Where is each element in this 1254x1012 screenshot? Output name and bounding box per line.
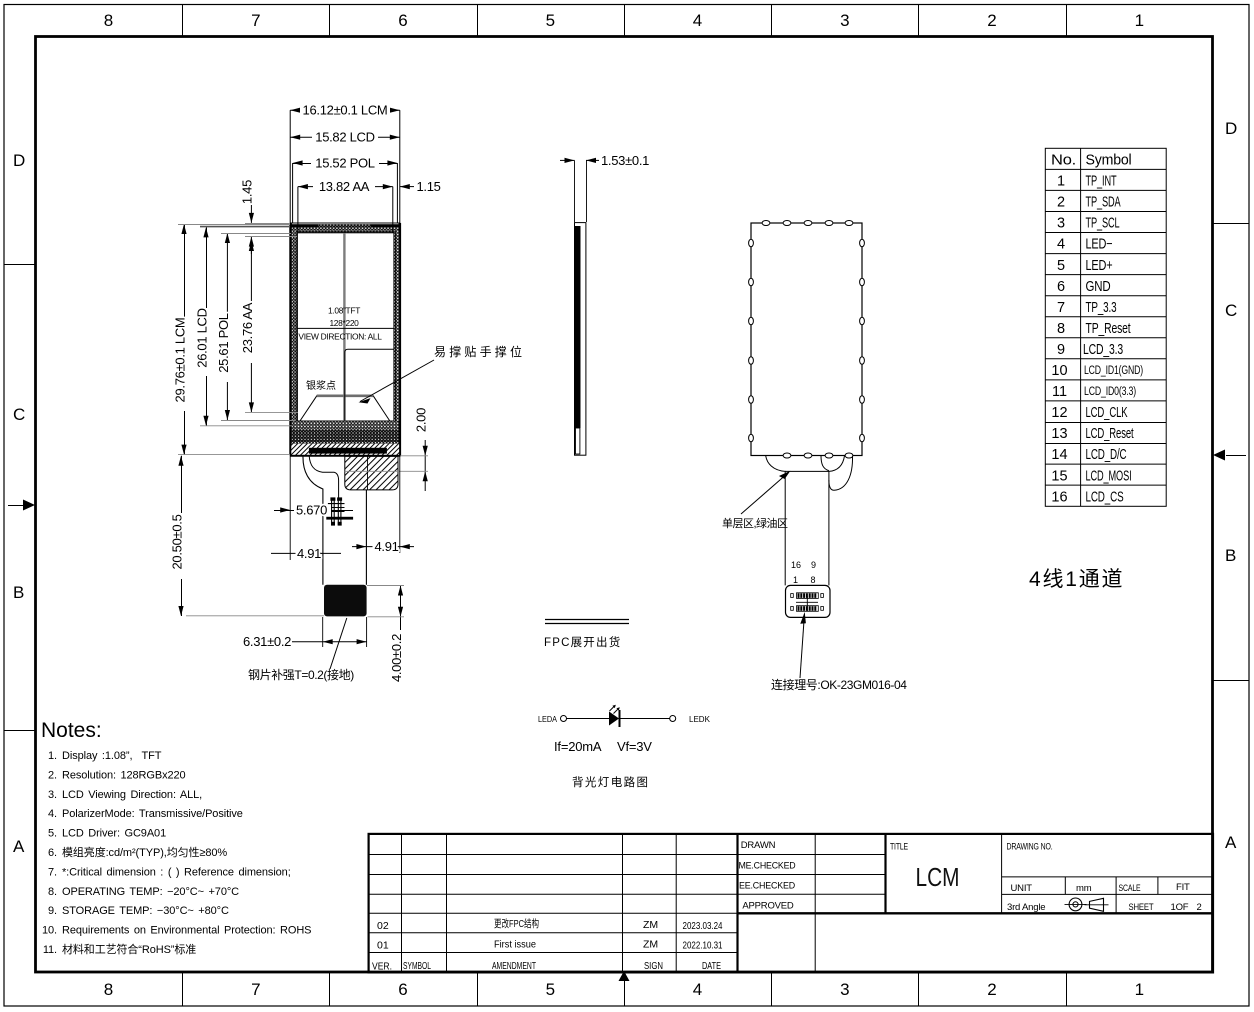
svg-text:单层区,绿油区: 单层区,绿油区	[722, 516, 788, 530]
svg-text:1.08”TFT: 1.08”TFT	[328, 306, 360, 316]
svg-text:16.12±0.1 LCM: 16.12±0.1 LCM	[303, 103, 388, 118]
svg-text:LCD_CLK: LCD_CLK	[1086, 405, 1128, 421]
svg-text:连接理号:OK-23GM016-04: 连接理号:OK-23GM016-04	[771, 677, 907, 692]
svg-text:DATE: DATE	[702, 960, 721, 972]
svg-text:Symbol: Symbol	[1086, 153, 1132, 169]
svg-text:7: 7	[251, 980, 260, 999]
svg-text:2: 2	[1057, 195, 1065, 211]
svg-text:6.: 6.	[48, 847, 57, 859]
svg-text:15: 15	[1051, 468, 1067, 484]
svg-text:TP_SCL: TP_SCL	[1086, 216, 1120, 232]
svg-text:FIT: FIT	[1176, 882, 1190, 893]
svg-text:4线1通道: 4线1通道	[1029, 568, 1124, 591]
svg-text:D: D	[13, 151, 25, 170]
svg-text:12: 12	[1051, 405, 1067, 421]
svg-text:25.61 POL: 25.61 POL	[216, 313, 231, 373]
svg-text:4: 4	[1057, 237, 1065, 253]
svg-text:13: 13	[1051, 426, 1067, 442]
svg-text:1.53±0.1: 1.53±0.1	[601, 153, 649, 168]
svg-text:LCD_MOSI: LCD_MOSI	[1086, 468, 1132, 484]
svg-text:10: 10	[1051, 363, 1067, 379]
svg-text:4: 4	[693, 11, 702, 30]
svg-text:3: 3	[1057, 216, 1065, 232]
svg-text:8: 8	[104, 11, 113, 30]
svg-text:6.31±0.2: 6.31±0.2	[243, 634, 291, 649]
svg-text:Display :1.08”, TFT: Display :1.08”, TFT	[62, 750, 162, 762]
svg-text:7.: 7.	[48, 866, 57, 878]
svg-text:11.: 11.	[43, 944, 57, 956]
svg-text:16: 16	[791, 560, 801, 570]
svg-text:SYMBOL: SYMBOL	[403, 960, 431, 972]
svg-text:Vf=3V: Vf=3V	[617, 739, 652, 754]
svg-text:LED−: LED−	[1086, 237, 1113, 253]
svg-text:LCD_ID0(3.3): LCD_ID0(3.3)	[1084, 386, 1136, 398]
svg-text:9: 9	[811, 560, 816, 570]
svg-text:DRAWN: DRAWN	[741, 840, 776, 851]
svg-text:1OF: 1OF	[1171, 902, 1189, 913]
svg-text:EE.CHECKED: EE.CHECKED	[739, 881, 795, 892]
svg-text:ZM: ZM	[643, 919, 658, 931]
svg-text:3.: 3.	[48, 789, 57, 801]
svg-text:易撑贴手撑位: 易撑贴手撑位	[434, 344, 525, 359]
svg-text:14: 14	[1051, 447, 1067, 463]
svg-text:02: 02	[377, 920, 389, 932]
svg-text:5: 5	[1057, 258, 1065, 274]
svg-text:1.45: 1.45	[240, 180, 255, 204]
svg-text:LCD_3.3: LCD_3.3	[1083, 342, 1123, 358]
svg-text:10.: 10.	[42, 925, 57, 937]
svg-text:Notes:: Notes:	[41, 719, 102, 742]
svg-text:2.: 2.	[48, 769, 57, 781]
svg-text:6: 6	[398, 11, 407, 30]
svg-text:LEDK: LEDK	[689, 715, 711, 724]
svg-text:1: 1	[1057, 174, 1065, 190]
svg-text:LCD Driver: GC9A01: LCD Driver: GC9A01	[62, 828, 166, 840]
svg-text:VER.: VER.	[372, 961, 392, 973]
svg-text:材料和工艺符合“RoHS”标准: 材料和工艺符合“RoHS”标准	[62, 942, 196, 956]
svg-text:APPROVED: APPROVED	[742, 901, 794, 912]
svg-text:OPERATING TEMP: −20°C~ +70°C: OPERATING TEMP: −20°C~ +70°C	[62, 886, 239, 898]
svg-text:6: 6	[1057, 279, 1065, 295]
svg-text:2023.03.24: 2023.03.24	[683, 920, 723, 932]
svg-text:1: 1	[793, 575, 798, 585]
svg-text:23.76 AA: 23.76 AA	[240, 302, 255, 353]
svg-text:TP_INT: TP_INT	[1086, 174, 1117, 190]
svg-text:5.670: 5.670	[296, 503, 327, 518]
svg-text:银浆点: 银浆点	[306, 379, 336, 392]
svg-text:Requirements on Environmental: Requirements on Environmental Protection…	[62, 925, 311, 937]
svg-text:9.: 9.	[48, 905, 57, 917]
svg-text:4.: 4.	[48, 808, 57, 820]
svg-text:7: 7	[251, 11, 260, 30]
svg-text:C: C	[13, 405, 25, 424]
svg-text:AMENDMENT: AMENDMENT	[492, 960, 536, 972]
svg-text:FPC展开出货: FPC展开出货	[544, 635, 621, 649]
svg-text:8: 8	[1057, 321, 1065, 337]
svg-text:4.91: 4.91	[297, 546, 321, 561]
svg-text:7: 7	[1057, 300, 1065, 316]
svg-text:5.: 5.	[48, 828, 57, 840]
svg-text:11: 11	[1052, 384, 1067, 400]
svg-text:If=20mA: If=20mA	[554, 739, 602, 754]
svg-text:背光灯电路图: 背光灯电路图	[572, 775, 649, 789]
svg-text:1: 1	[1135, 980, 1144, 999]
svg-text:UNIT: UNIT	[1011, 883, 1033, 894]
svg-text:LEDA: LEDA	[538, 715, 558, 724]
svg-text:15.52 POL: 15.52 POL	[315, 156, 375, 171]
svg-text:8: 8	[811, 575, 816, 585]
svg-text:钢片补强T=0.2(接地): 钢片补强T=0.2(接地)	[248, 667, 354, 682]
svg-text:STORAGE TEMP: −30°C~ +80°C: STORAGE TEMP: −30°C~ +80°C	[62, 905, 229, 917]
svg-text:13.82 AA: 13.82 AA	[319, 179, 370, 194]
svg-text:First issue: First issue	[494, 939, 536, 951]
svg-text:mm: mm	[1076, 883, 1092, 894]
svg-text:01: 01	[377, 940, 389, 952]
svg-text:TITLE: TITLE	[890, 842, 908, 853]
svg-text:4.00±0.2: 4.00±0.2	[389, 634, 404, 682]
svg-text:PolarizerMode: Transmissive/Po: PolarizerMode: Transmissive/Positive	[62, 808, 243, 820]
svg-text:C: C	[1225, 301, 1237, 320]
svg-text:Resolution: 128RGBx220: Resolution: 128RGBx220	[62, 769, 186, 781]
svg-text:2: 2	[987, 11, 996, 30]
svg-text:1.15: 1.15	[417, 179, 441, 194]
svg-text:4.91: 4.91	[375, 539, 399, 554]
svg-text:LCD_ID1(GND): LCD_ID1(GND)	[1084, 365, 1143, 377]
svg-text:SCALE: SCALE	[1119, 883, 1141, 894]
svg-text:No.: No.	[1051, 153, 1076, 169]
svg-text:TP_Reset: TP_Reset	[1086, 321, 1131, 337]
svg-text:D: D	[1225, 119, 1237, 138]
svg-text:29.76±0.1 LCM: 29.76±0.1 LCM	[173, 318, 188, 403]
svg-text:LED+: LED+	[1086, 258, 1113, 274]
svg-text:LCD Viewing Direction: ALL,: LCD Viewing Direction: ALL,	[62, 789, 202, 801]
svg-text:LCD_CS: LCD_CS	[1086, 489, 1124, 505]
svg-text:ZM: ZM	[643, 939, 658, 951]
svg-text:A: A	[13, 837, 25, 856]
svg-text:SHEET: SHEET	[1129, 902, 1154, 913]
svg-text:3: 3	[840, 980, 849, 999]
svg-text:LCD_Reset: LCD_Reset	[1086, 426, 1134, 442]
svg-text:LCM: LCM	[916, 862, 960, 892]
svg-text:5: 5	[546, 11, 555, 30]
svg-text:*:Critical dimension : ( ) Ref: *:Critical dimension : ( ) Reference dim…	[62, 866, 291, 878]
svg-text:4: 4	[693, 980, 702, 999]
svg-text:15.82 LCD: 15.82 LCD	[315, 130, 374, 145]
svg-text:TP_3.3: TP_3.3	[1086, 300, 1117, 316]
svg-text:8.: 8.	[48, 886, 57, 898]
svg-text:1: 1	[1135, 11, 1144, 30]
svg-text:TP_SDA: TP_SDA	[1086, 195, 1121, 211]
svg-text:ME.CHECKED: ME.CHECKED	[739, 861, 796, 872]
svg-text:9: 9	[1057, 342, 1065, 358]
svg-text:A: A	[1225, 833, 1237, 852]
svg-text:B: B	[13, 583, 24, 602]
svg-text:2.00: 2.00	[414, 408, 429, 432]
svg-text:更改FPC结构: 更改FPC结构	[494, 917, 539, 930]
svg-text:SIGN: SIGN	[644, 960, 663, 972]
svg-text:2: 2	[1197, 902, 1202, 913]
svg-text:模组亮度:cd/m²(TYP),均匀性≥80%: 模组亮度:cd/m²(TYP),均匀性≥80%	[62, 845, 227, 859]
svg-text:6: 6	[398, 980, 407, 999]
svg-text:VIEW DIRECTION: ALL: VIEW DIRECTION: ALL	[298, 332, 382, 342]
svg-text:GND: GND	[1086, 279, 1111, 295]
svg-text:2022.10.31: 2022.10.31	[683, 940, 723, 952]
svg-text:2: 2	[987, 980, 996, 999]
svg-text:16: 16	[1051, 489, 1067, 505]
svg-text:DRAWING NO.: DRAWING NO.	[1007, 842, 1053, 853]
svg-text:5: 5	[546, 980, 555, 999]
svg-text:LCD_D/C: LCD_D/C	[1086, 447, 1127, 463]
svg-text:20.50±0.5: 20.50±0.5	[169, 514, 184, 569]
svg-text:1.: 1.	[48, 750, 57, 762]
svg-text:128*220: 128*220	[329, 318, 359, 328]
svg-text:3: 3	[840, 11, 849, 30]
svg-text:B: B	[1225, 546, 1236, 565]
svg-text:3rd Angle: 3rd Angle	[1007, 902, 1045, 913]
svg-text:8: 8	[104, 980, 113, 999]
svg-text:26.01 LCD: 26.01 LCD	[195, 308, 210, 367]
